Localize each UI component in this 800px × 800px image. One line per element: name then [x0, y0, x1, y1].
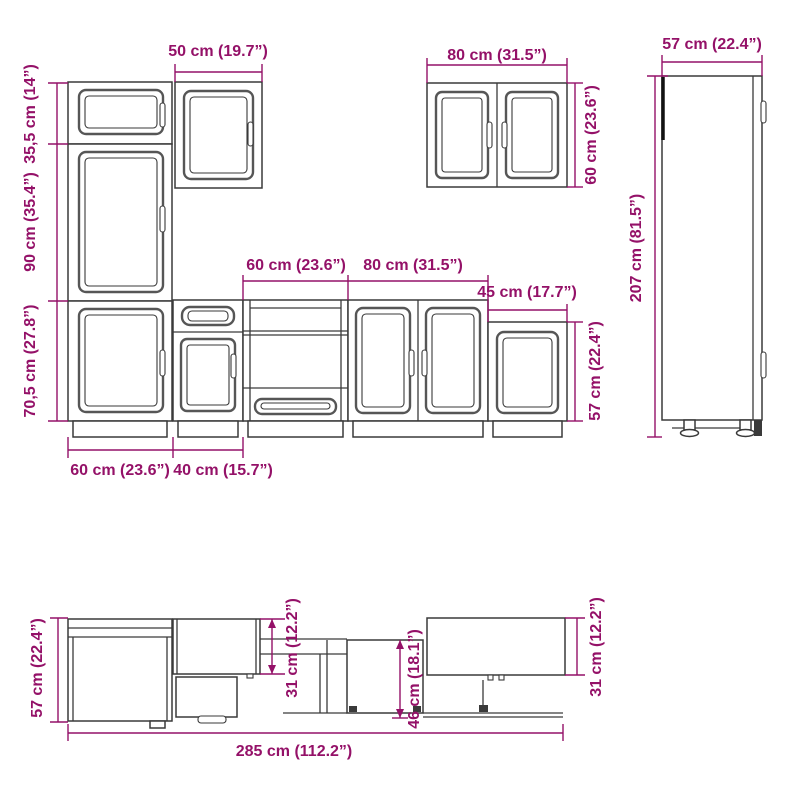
dim-base-height: 70,5 cm (27.8”): [23, 305, 39, 418]
dim-side-depth-57: 57 cm (22.4”): [662, 37, 762, 53]
drawer-handle: [198, 716, 226, 723]
door-handle: [248, 122, 253, 146]
dim-base-40-width: 40 cm (15.7”): [173, 463, 273, 479]
dim-plan-wall-31-left: 31 cm (12.2”): [285, 598, 301, 698]
door-handle: [409, 350, 414, 376]
diagram-drawing: [0, 0, 800, 800]
plan-view: [68, 618, 565, 728]
door-handle: [422, 350, 427, 376]
dim-base-60-width: 60 cm (23.6”): [70, 463, 170, 479]
door-handle: [761, 352, 766, 378]
tall-cabinet-side-view: [662, 76, 766, 437]
adjustable-foot: [740, 420, 751, 430]
dim-wall-60-height: 60 cm (23.6”): [584, 85, 600, 185]
door-handle: [502, 122, 507, 148]
door-handle: [160, 206, 165, 232]
dim-plan-depth-57: 57 cm (22.4”): [30, 618, 46, 718]
door-handle: [160, 103, 165, 127]
tall-unit-plinth: [73, 421, 167, 437]
plan-left-unit: [68, 619, 172, 721]
dim-plan-total-285: 285 cm (112.2”): [236, 744, 353, 760]
adjustable-foot: [684, 420, 695, 430]
dim-oven-60-width: 60 cm (23.6”): [246, 258, 346, 274]
cabinet-dimension-diagram: 50 cm (19.7”) 35,5 cm (14”) 90 cm (35.4”…: [0, 0, 800, 800]
plan-base-cabinet-40: [176, 677, 237, 717]
dim-base-80-width: 80 cm (31.5”): [363, 258, 463, 274]
plan-wall-cabinet-50: [173, 619, 260, 674]
plan-wall-cabinet-80: [427, 618, 565, 675]
dim-end-45-width: 45 cm (17.7”): [477, 285, 577, 301]
door-handle: [487, 122, 492, 148]
dim-end-57-height: 57 cm (22.4”): [588, 321, 604, 421]
dim-tall-top-height: 35,5 cm (14”): [23, 64, 39, 164]
dim-plan-wall-31-right: 31 cm (12.2”): [589, 597, 605, 697]
door-handle: [160, 350, 165, 376]
door-handle: [231, 354, 236, 378]
dim-tall-mid-height: 90 cm (35.4”): [23, 172, 39, 272]
dim-plan-base-46: 46 cm (18.1”): [407, 629, 423, 729]
dim-wall-cabinet-50-width: 50 cm (19.7”): [168, 44, 268, 60]
dim-side-height-207: 207 cm (81.5”): [629, 194, 645, 303]
dim-wall-cabinet-80-width: 80 cm (31.5”): [447, 48, 547, 64]
side-view-outline: [662, 76, 762, 420]
door-handle: [761, 101, 766, 123]
